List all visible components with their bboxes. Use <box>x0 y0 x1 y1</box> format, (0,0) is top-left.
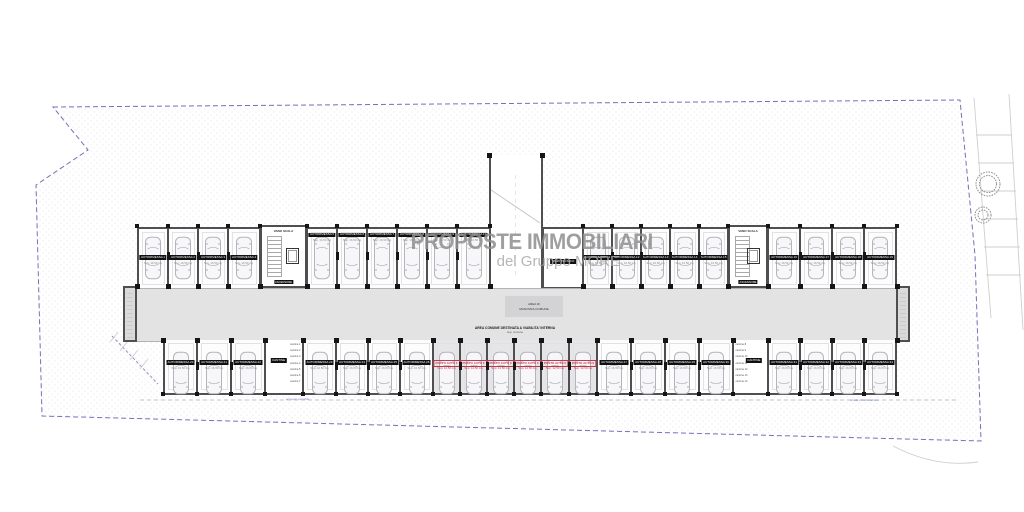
car-icon <box>433 236 451 285</box>
cellar-list-item: cantina 3 <box>290 354 301 360</box>
stall-area-label: Sup. 16,50 mq <box>605 366 623 370</box>
cellar-list-item: cantina 14 <box>736 379 748 385</box>
structural-pillar <box>766 224 770 228</box>
structural-pillar <box>697 392 701 396</box>
structural-pillar <box>485 338 490 343</box>
car-icon <box>408 346 426 395</box>
stall-area-label: Sup. 16,50 mq <box>617 261 635 265</box>
parking-stall: AUTORIMESSA 8 Sup. 16,50 mq <box>397 227 427 288</box>
parking-stall: AUTORIMESSA 3 Sup. 16,50 mq <box>198 227 228 288</box>
ramp-slope-line <box>491 155 540 288</box>
structural-pillar <box>731 392 735 396</box>
car-icon <box>205 346 223 395</box>
stall-area-label: Sup. 16,50 mq <box>171 366 189 370</box>
structural-pillar <box>766 284 771 289</box>
parking-stall: POSTO AUTO 5 Sup. 12,50 mq <box>541 340 569 395</box>
parking-stall: AUTORIMESSA 20 Sup. 16,50 mq <box>163 340 197 395</box>
corridor-right-end <box>896 286 910 342</box>
car-icon <box>605 346 623 395</box>
structural-pillar <box>455 224 459 228</box>
parking-stall: AUTORIMESSA 11 Sup. 16,50 mq <box>583 227 612 288</box>
stall-label: AUTORIMESSA 15 <box>699 255 728 260</box>
maneuver-area-label-2: MANOVRA COMUNE <box>519 307 548 311</box>
stall-area-label: Sup. 16,50 mq <box>646 261 664 265</box>
parking-stall: AUTORIMESSA 16 Sup. 16,50 mq <box>768 227 800 288</box>
parking-stall: AUTORIMESSA 9 Sup. 16,50 mq <box>427 227 457 288</box>
stall-area-label: Sup. 16,50 mq <box>775 366 793 370</box>
stall-area-label: Sup. 16,50 mq <box>639 366 657 370</box>
structural-pillar <box>831 362 834 370</box>
structural-pillar <box>669 252 672 260</box>
structural-pillar <box>862 338 867 343</box>
structural-pillar <box>226 224 230 228</box>
structural-pillar <box>486 362 489 370</box>
stall-area-label: Sup. 12,50 mq <box>518 366 536 370</box>
stall-area-label: Sup. 16,50 mq <box>704 261 722 265</box>
common-area-note: AREA COMUNE DESTINATA A VIABILITA' INTER… <box>452 326 578 334</box>
parking-stall: AUTORIMESSA 23 Sup. 16,50 mq <box>303 340 336 395</box>
structural-pillar <box>335 362 338 370</box>
car-icon <box>519 346 537 395</box>
car-icon <box>574 346 592 395</box>
stall-label: AUTORIMESSA 10 <box>459 233 488 238</box>
stall-label: AUTORIMESSA 7 <box>368 233 395 238</box>
stall-area-label: Sup. 16,50 mq <box>239 366 257 370</box>
car-icon <box>311 346 329 395</box>
structural-pillar <box>366 252 369 260</box>
parking-stall: AUTORIMESSA 14 Sup. 16,50 mq <box>670 227 699 288</box>
parking-stall: AUTORIMESSA 7 Sup. 16,50 mq <box>367 227 397 288</box>
stall-area-label: Sup. 16,50 mq <box>403 238 421 242</box>
stall-label: AUTORIMESSA 31 <box>770 360 799 365</box>
stall-label: AUTORIMESSA 5 <box>308 233 335 238</box>
cellar-label: CANTINE <box>746 358 762 363</box>
structural-pillar <box>668 224 672 228</box>
stall-area-label: Sup. 16,50 mq <box>675 261 693 265</box>
parking-stall: AUTORIMESSA 32 Sup. 16,50 mq <box>800 340 832 395</box>
structural-pillar <box>512 338 517 343</box>
structural-pillar <box>629 392 633 396</box>
stall-label: AUTORIMESSA 3 <box>199 255 226 260</box>
structural-pillar <box>512 392 516 396</box>
stall-label: AUTORIMESSA 29 <box>668 360 697 365</box>
structural-pillar <box>197 252 200 260</box>
structural-pillar <box>539 392 543 396</box>
structural-pillar <box>698 362 701 370</box>
stall-area-label: Sup. 16,50 mq <box>433 238 451 242</box>
structural-pillar <box>513 362 516 370</box>
stall-area-label: Sup. 16,50 mq <box>464 238 482 242</box>
structural-pillar <box>610 284 615 289</box>
structural-pillar <box>336 252 339 260</box>
ramp-wall-pillar <box>487 153 492 158</box>
structural-pillar <box>731 338 736 343</box>
stall-area-label: Sup. 16,50 mq <box>871 261 889 265</box>
stair-core-right: VANO SCALA ASCENSORE <box>728 225 768 288</box>
parking-stall: POSTO AUTO 3 Sup. 12,50 mq <box>487 340 514 395</box>
parking-stall: POSTO AUTO 6 Sup. 12,50 mq <box>569 340 597 395</box>
stall-area-label: Sup. 16,50 mq <box>313 238 331 242</box>
parking-stall: AUTORIMESSA 34 Sup. 16,50 mq <box>864 340 897 395</box>
site-note-right: strada di lottizzazione <box>850 398 879 402</box>
structural-pillar <box>663 392 667 396</box>
parking-stall: AUTORIMESSA 18 Sup. 16,50 mq <box>832 227 864 288</box>
structural-pillar <box>456 252 459 260</box>
structural-pillar <box>258 224 262 228</box>
stall-area-label: Sup. 16,50 mq <box>588 261 606 265</box>
stall-label: AUTORIMESSA 22 <box>234 360 263 365</box>
structural-pillar <box>799 252 802 260</box>
structural-pillar <box>227 252 230 260</box>
car-icon <box>172 346 190 395</box>
elevator-label: ASCENSORE <box>738 280 757 284</box>
structural-pillar <box>568 362 571 370</box>
parking-stall: AUTORIMESSA 30 Sup. 16,50 mq <box>699 340 733 395</box>
car-icon <box>639 346 657 395</box>
structural-pillar <box>798 338 803 343</box>
structural-pillar <box>611 252 614 260</box>
car-icon <box>839 346 857 395</box>
structural-pillar <box>895 338 900 343</box>
structural-pillar <box>398 392 402 396</box>
structural-pillar <box>595 338 600 343</box>
car-icon <box>373 236 391 285</box>
stall-area-label: Sup. 16,50 mq <box>407 366 425 370</box>
stall-label: AUTORIMESSA 33 <box>834 360 863 365</box>
structural-pillar <box>455 284 460 289</box>
structural-pillar <box>367 362 370 370</box>
cellar-block-left: CANTINE cantina 1cantina 2cantina 3canti… <box>265 340 303 395</box>
parking-stall: AUTORIMESSA 12 Sup. 16,50 mq <box>612 227 641 288</box>
stall-label: AUTORIMESSA 21 <box>200 360 229 365</box>
structural-pillar <box>166 284 171 289</box>
structural-pillar <box>630 362 633 370</box>
structural-pillar <box>366 392 370 396</box>
cellar-list-item: cantina 10 <box>736 354 748 360</box>
stall-label: AUTORIMESSA 12 <box>612 255 641 260</box>
parking-stall: AUTORIMESSA 17 Sup. 16,50 mq <box>800 227 832 288</box>
stair-core-left: VANO SCALA ASCENSORE <box>260 225 307 288</box>
stair-core-label: VANO SCALA <box>730 229 766 233</box>
structural-pillar <box>830 392 834 396</box>
structural-pillar <box>726 284 731 289</box>
stall-label: AUTORIMESSA 13 <box>641 255 670 260</box>
structural-pillar <box>668 284 673 289</box>
stairs-icon <box>267 236 282 277</box>
structural-pillar <box>334 338 339 343</box>
stall-label: AUTORIMESSA 26 <box>402 360 431 365</box>
stall-area-label: Sup. 12,50 mq <box>491 366 509 370</box>
structural-pillar <box>488 284 493 289</box>
stall-area-label: Sup. 16,50 mq <box>375 366 393 370</box>
structural-pillar <box>431 392 435 396</box>
structural-pillar <box>863 362 866 370</box>
structural-pillar <box>639 224 643 228</box>
stall-label: AUTORIMESSA 11 <box>583 255 612 260</box>
structural-pillar <box>629 338 634 343</box>
structural-pillar <box>398 338 403 343</box>
structural-pillar <box>263 392 267 396</box>
car-icon <box>492 346 510 395</box>
structural-pillar <box>798 392 802 396</box>
stall-area-label: Sup. 16,50 mq <box>310 366 328 370</box>
structural-pillar <box>263 338 268 343</box>
structural-pillar <box>458 392 462 396</box>
structural-pillar <box>895 284 900 289</box>
structural-pillar <box>196 224 200 228</box>
car-icon <box>546 346 564 395</box>
structural-pillar <box>335 284 340 289</box>
stall-area-label: Sup. 16,50 mq <box>775 261 793 265</box>
structural-pillar <box>166 224 170 228</box>
stall-area-label: Sup. 16,50 mq <box>343 366 361 370</box>
parking-stall: AUTORIMESSA 24 Sup. 16,50 mq <box>336 340 368 395</box>
cellar-list: cantina 8cantina 9cantina 10cantina 11ca… <box>736 342 748 386</box>
car-icon <box>871 346 889 395</box>
parking-stall: AUTORIMESSA 2 Sup. 16,50 mq <box>168 227 198 288</box>
car-icon <box>465 236 483 285</box>
stall-label: AUTORIMESSA 24 <box>338 360 367 365</box>
parking-stall: POSTO AUTO 2 Sup. 12,50 mq <box>460 340 487 395</box>
parking-stall: AUTORIMESSA 26 Sup. 16,50 mq <box>400 340 433 395</box>
stall-label: AUTORIMESSA 28 <box>634 360 663 365</box>
structural-pillar <box>831 252 834 260</box>
structural-pillar <box>798 284 803 289</box>
vehicle-ramp <box>489 155 543 288</box>
structural-pillar <box>581 284 586 289</box>
stall-label: AUTORIMESSA 32 <box>802 360 831 365</box>
parking-stall: AUTORIMESSA 19 Sup. 16,50 mq <box>864 227 897 288</box>
stall-label: AUTORIMESSA 8 <box>398 233 425 238</box>
stall-area-label: Sup. 16,50 mq <box>807 261 825 265</box>
car-icon <box>239 346 257 395</box>
structural-pillar <box>195 392 199 396</box>
stall-area-label: Sup. 16,50 mq <box>235 261 253 265</box>
structural-pillar <box>305 284 310 289</box>
structural-pillar <box>798 224 802 228</box>
cellar-list: cantina 1cantina 2cantina 3cantina 4cant… <box>290 342 301 386</box>
parking-stall: AUTORIMESSA 6 Sup. 16,50 mq <box>337 227 367 288</box>
parking-stall: AUTORIMESSA 25 Sup. 16,50 mq <box>368 340 400 395</box>
structural-pillar <box>135 224 139 228</box>
structural-pillar <box>539 338 544 343</box>
structural-pillar <box>258 284 263 289</box>
structural-pillar <box>431 338 436 343</box>
stall-area-label: Sup. 16,50 mq <box>807 366 825 370</box>
stall-area-label: Sup. 12,50 mq <box>437 366 455 370</box>
stall-label: AUTORIMESSA 25 <box>370 360 399 365</box>
car-icon <box>313 236 331 285</box>
stall-label: AUTORIMESSA 16 <box>770 255 799 260</box>
structural-pillar <box>595 392 599 396</box>
parking-stall: AUTORIMESSA 29 Sup. 16,50 mq <box>665 340 699 395</box>
stall-area-label: Sup. 16,50 mq <box>839 366 857 370</box>
stall-label: AUTORIMESSA 20 <box>166 360 195 365</box>
structural-pillar <box>610 224 614 228</box>
structural-pillar <box>196 362 199 370</box>
structural-pillar <box>426 252 429 260</box>
structural-pillar <box>301 392 305 396</box>
structural-pillar <box>895 224 899 228</box>
elevator-icon <box>747 248 760 264</box>
structural-pillar <box>640 252 643 260</box>
structural-pillar <box>581 224 585 228</box>
elevator-label: ASCENSORE <box>274 280 293 284</box>
structural-pillar <box>862 284 867 289</box>
stall-label: AUTORIMESSA 18 <box>834 255 863 260</box>
underground-garage-building: VANO SCALA ASCENSORE VANO SCALA ASCENSOR… <box>0 0 1024 512</box>
structural-pillar <box>161 338 166 343</box>
common-area-note-line2: sup. comune <box>452 330 578 334</box>
car-icon <box>673 346 691 395</box>
stall-area-label: Sup. 16,50 mq <box>144 261 162 265</box>
structural-pillar <box>425 224 429 228</box>
structural-pillar <box>799 362 802 370</box>
cellar-list-item: cantina 4 <box>290 361 301 367</box>
structural-pillar <box>230 362 233 370</box>
structural-pillar <box>167 252 170 260</box>
structural-pillar <box>862 224 866 228</box>
ramp-wall-pillar <box>540 153 545 158</box>
structural-pillar <box>639 284 644 289</box>
cellar-block-right: CANTINE cantina 8cantina 9cantina 10cant… <box>733 340 768 395</box>
stall-area-label: Sup. 16,50 mq <box>673 366 691 370</box>
stall-label: AUTORIMESSA 4 <box>230 255 257 260</box>
elevator-icon <box>286 248 299 264</box>
stall-area-label: Sup. 16,50 mq <box>871 366 889 370</box>
structural-pillar <box>862 392 866 396</box>
structural-pillar <box>335 224 339 228</box>
structural-pillar <box>334 392 338 396</box>
structural-pillar <box>697 284 702 289</box>
structural-pillar <box>458 338 463 343</box>
parking-stall: AUTORIMESSA 10 Sup. 16,50 mq <box>457 227 490 288</box>
structural-pillar <box>488 224 492 228</box>
structural-pillar <box>226 284 231 289</box>
car-icon <box>465 346 483 395</box>
parking-stall: AUTORIMESSA 28 Sup. 16,50 mq <box>631 340 665 395</box>
stall-area-label: Sup. 16,50 mq <box>343 238 361 242</box>
structural-pillar <box>301 338 306 343</box>
parking-stall: AUTORIMESSA 1 Sup. 16,50 mq <box>137 227 168 288</box>
stall-label: AUTORIMESSA 2 <box>169 255 196 260</box>
car-icon <box>807 346 825 395</box>
structural-pillar <box>567 338 572 343</box>
stall-label: AUTORIMESSA 9 <box>428 233 455 238</box>
structural-pillar <box>395 224 399 228</box>
stall-area-label: Sup. 16,50 mq <box>373 238 391 242</box>
stall-area-label: Sup. 12,50 mq <box>464 366 482 370</box>
stall-area-label: Sup. 16,50 mq <box>204 261 222 265</box>
stall-area-label: Sup. 12,50 mq <box>546 366 564 370</box>
stall-label: AUTORIMESSA 6 <box>338 233 365 238</box>
structural-pillar <box>863 252 866 260</box>
structural-pillar <box>366 338 371 343</box>
structural-pillar <box>540 362 543 370</box>
technical-room-label: VANO TECNICO <box>550 259 576 264</box>
car-icon <box>707 346 725 395</box>
structural-pillar <box>697 224 701 228</box>
car-icon <box>403 236 421 285</box>
structural-pillar <box>161 392 165 396</box>
structural-pillar <box>663 338 668 343</box>
structural-pillar <box>399 362 402 370</box>
parking-stall: AUTORIMESSA 27 Sup. 16,50 mq <box>597 340 631 395</box>
structural-pillar <box>305 224 309 228</box>
structural-pillar <box>135 284 140 289</box>
structural-pillar <box>459 362 462 370</box>
stall-area-label: Sup. 16,50 mq <box>174 261 192 265</box>
structural-pillar <box>664 362 667 370</box>
parking-stall: AUTORIMESSA 13 Sup. 16,50 mq <box>641 227 670 288</box>
parking-stall: AUTORIMESSA 4 Sup. 16,50 mq <box>228 227 260 288</box>
parking-stall: AUTORIMESSA 22 Sup. 16,50 mq <box>231 340 265 395</box>
car-icon <box>343 236 361 285</box>
structural-pillar <box>766 392 770 396</box>
car-icon <box>775 346 793 395</box>
cellar-label: CANTINE <box>270 358 286 363</box>
stall-label: AUTORIMESSA 23 <box>305 360 334 365</box>
parking-stall: AUTORIMESSA 31 Sup. 16,50 mq <box>768 340 800 395</box>
cellar-list-item: cantina 7 <box>290 379 301 385</box>
maneuver-area-box: AREA DI MANOVRA COMUNE <box>505 296 563 317</box>
car-icon <box>375 346 393 395</box>
floor-plan-canvas: VANO SCALA ASCENSORE VANO SCALA ASCENSOR… <box>0 0 1024 512</box>
parking-stall: AUTORIMESSA 33 Sup. 16,50 mq <box>832 340 864 395</box>
stall-label: AUTORIMESSA 1 <box>139 255 166 260</box>
structural-pillar <box>395 284 400 289</box>
structural-pillar <box>396 252 399 260</box>
structural-pillar <box>698 252 701 260</box>
car-icon <box>438 346 456 395</box>
technical-room: VANO TECNICO <box>543 227 583 288</box>
cellar-list-item: cantina 11 <box>736 361 748 367</box>
stall-label: AUTORIMESSA 17 <box>802 255 831 260</box>
stall-label: AUTORIMESSA 30 <box>702 360 731 365</box>
structural-pillar <box>697 338 702 343</box>
car-icon <box>343 346 361 395</box>
parking-stall: AUTORIMESSA 5 Sup. 16,50 mq <box>307 227 337 288</box>
stall-label: AUTORIMESSA 34 <box>866 360 895 365</box>
structural-pillar <box>229 338 234 343</box>
structural-pillar <box>229 392 233 396</box>
stall-label: AUTORIMESSA 19 <box>866 255 895 260</box>
structural-pillar <box>567 392 571 396</box>
parking-stall: AUTORIMESSA 15 Sup. 16,50 mq <box>699 227 728 288</box>
structural-pillar <box>196 284 201 289</box>
stall-label: AUTORIMESSA 14 <box>670 255 699 260</box>
structural-pillar <box>895 392 899 396</box>
structural-pillar <box>365 284 370 289</box>
structural-pillar <box>485 392 489 396</box>
site-note-left: accesso carrabile <box>286 397 309 401</box>
stall-area-label: Sup. 16,50 mq <box>205 366 223 370</box>
structural-pillar <box>195 338 200 343</box>
structural-pillar <box>830 338 835 343</box>
structural-pillar <box>425 284 430 289</box>
stall-label: AUTORIMESSA 27 <box>600 360 629 365</box>
stall-area-label: Sup. 16,50 mq <box>839 261 857 265</box>
structural-pillar <box>766 338 771 343</box>
stair-core-label: VANO SCALA <box>262 229 305 233</box>
structural-pillar <box>726 224 730 228</box>
structural-pillar <box>830 224 834 228</box>
stall-area-label: Sup. 12,50 mq <box>574 366 592 370</box>
structural-pillar <box>830 284 835 289</box>
parking-stall: POSTO AUTO 4 Sup. 12,50 mq <box>514 340 541 395</box>
structural-pillar <box>365 224 369 228</box>
stall-area-label: Sup. 16,50 mq <box>707 366 725 370</box>
